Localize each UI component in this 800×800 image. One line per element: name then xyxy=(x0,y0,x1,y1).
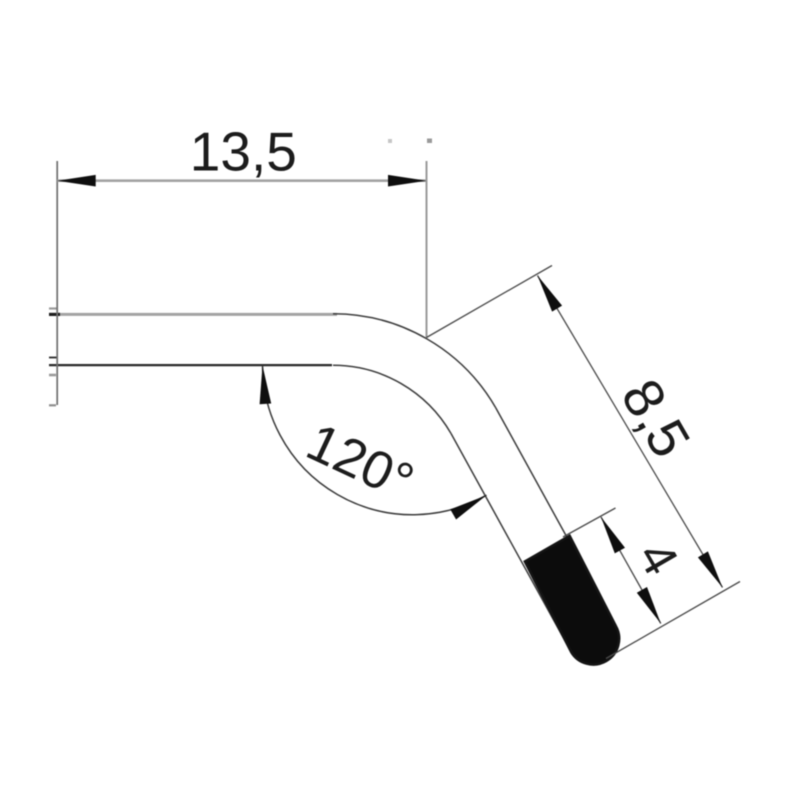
svg-text:13,5: 13,5 xyxy=(190,120,297,182)
